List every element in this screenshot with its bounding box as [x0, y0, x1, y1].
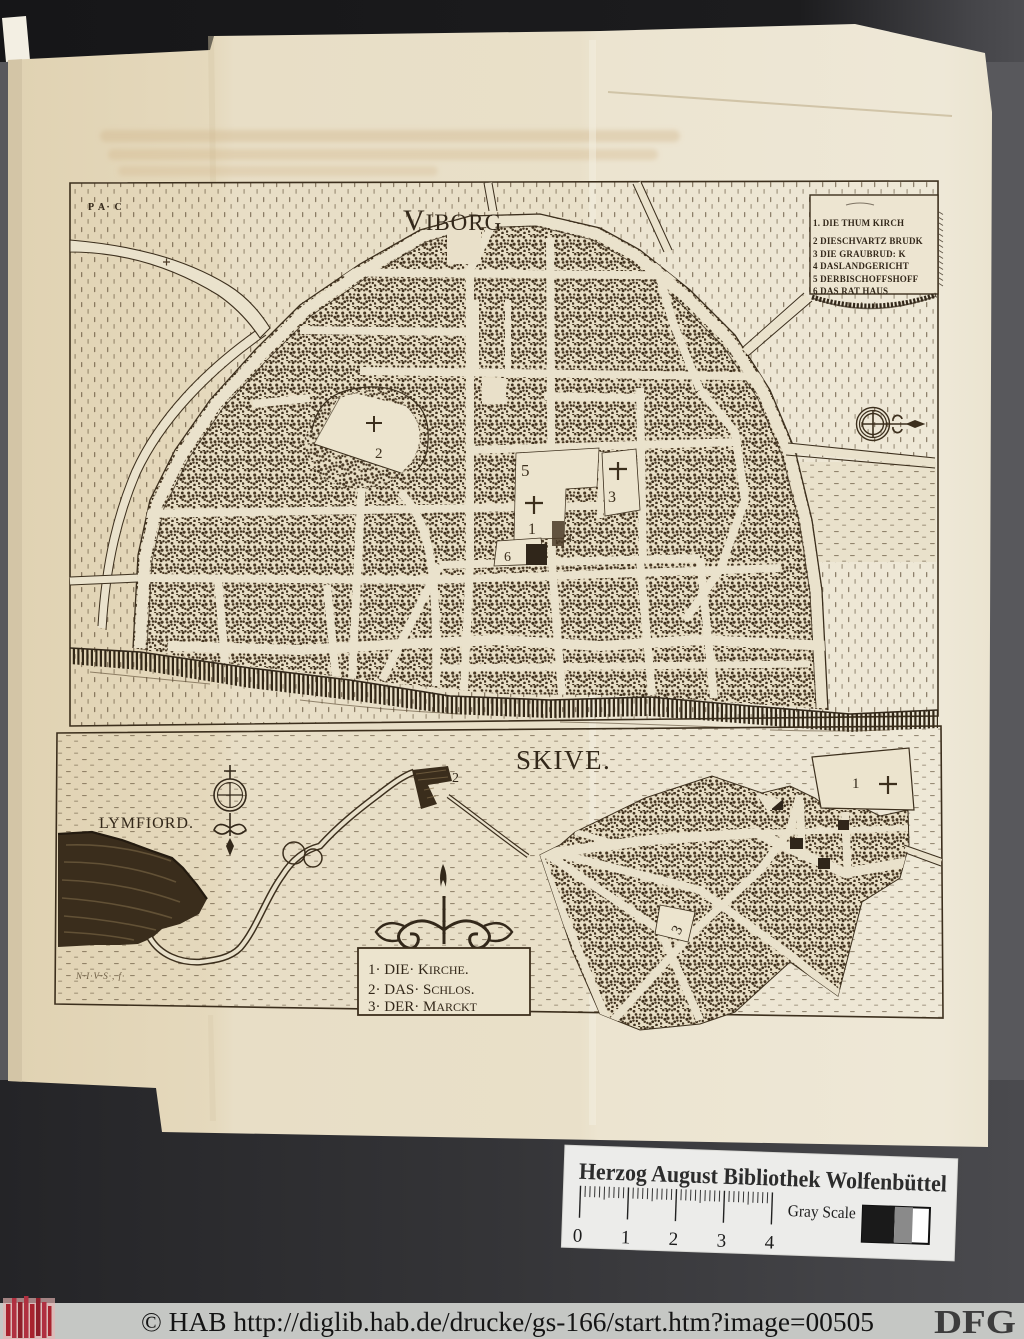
- svg-text:1: 1: [528, 521, 536, 538]
- svg-text:3· DER· MARCKT: 3· DER· MARCKT: [368, 999, 478, 1015]
- svg-text:1: 1: [620, 1227, 630, 1248]
- svg-text:2· DAS· SCHLOS.: 2· DAS· SCHLOS.: [368, 982, 474, 998]
- svg-text:LYMFIORD.: LYMFIORD.: [99, 815, 194, 832]
- svg-text:0: 0: [572, 1226, 582, 1247]
- svg-text:4: 4: [764, 1232, 775, 1253]
- svg-text:© HAB http://diglib.hab.de/dru: © HAB http://diglib.hab.de/drucke/gs-166…: [141, 1307, 874, 1337]
- svg-text:2: 2: [452, 771, 459, 786]
- svg-text:2: 2: [668, 1229, 678, 1250]
- svg-text:P A· C: P A· C: [88, 202, 123, 213]
- svg-text:6: 6: [504, 550, 511, 565]
- svg-text:1. DIE THUM KIRCH: 1. DIE THUM KIRCH: [813, 218, 904, 228]
- svg-text:2 DIESCHVARTZ BRUDK: 2 DIESCHVARTZ BRUDK: [813, 236, 923, 246]
- svg-text:2: 2: [375, 446, 383, 462]
- svg-text:3 DIE GRAUBRUD: K: 3 DIE GRAUBRUD: K: [813, 249, 906, 259]
- svg-text:Gray Scale: Gray Scale: [787, 1201, 856, 1222]
- svg-text:5 DERBISCHOFFSHOFF: 5 DERBISCHOFFSHOFF: [813, 274, 919, 284]
- svg-text:SKIVE.: SKIVE.: [516, 745, 611, 775]
- svg-text:1· DIE· KIRCHE.: 1· DIE· KIRCHE.: [368, 962, 469, 978]
- svg-text:5: 5: [521, 461, 530, 480]
- svg-text:3: 3: [608, 489, 616, 506]
- svg-text:1: 1: [852, 776, 860, 792]
- svg-text:3: 3: [716, 1231, 726, 1252]
- svg-text:4 DASLANDGERICHT: 4 DASLANDGERICHT: [813, 261, 909, 271]
- svg-text:6 DAS RAT HAUS: 6 DAS RAT HAUS: [813, 286, 888, 296]
- svg-text:4: 4: [566, 531, 572, 545]
- svg-text:DFG: DFG: [934, 1304, 1016, 1339]
- svg-text:N·I·V·S·, f·: N·I·V·S·, f·: [75, 971, 125, 981]
